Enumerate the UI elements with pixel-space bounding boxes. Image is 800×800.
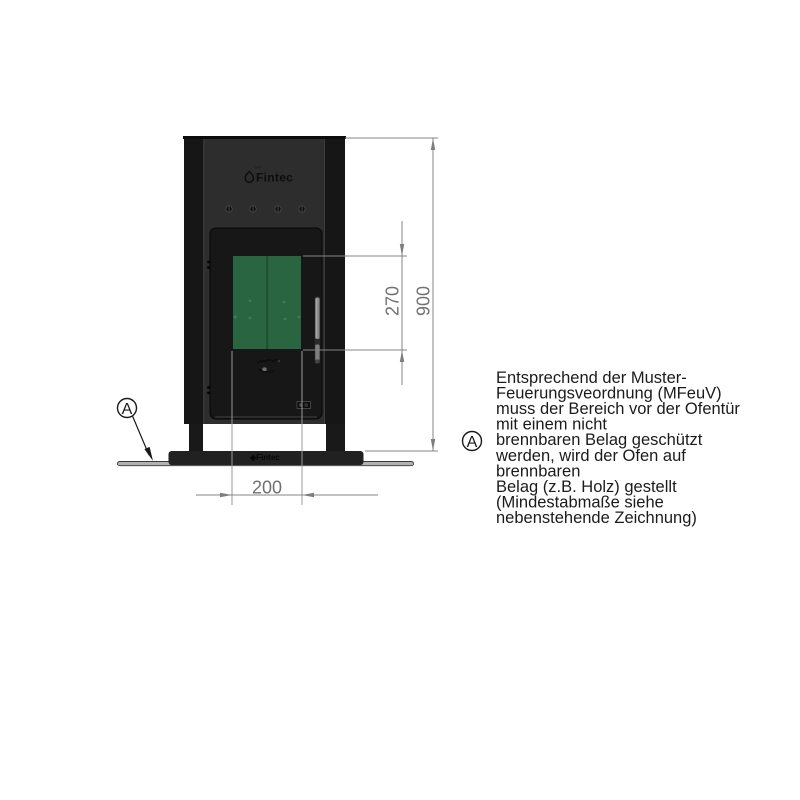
svg-text:A: A — [122, 401, 133, 418]
svg-text:A: A — [467, 434, 478, 451]
svg-text:270: 270 — [383, 286, 403, 316]
svg-text:200: 200 — [252, 478, 282, 498]
svg-text:◈Fintec: ◈Fintec — [249, 453, 280, 462]
svg-text:900: 900 — [414, 286, 434, 316]
svg-text:Fintec: Fintec — [256, 171, 293, 185]
svg-text:nebenstehende Zeichnung): nebenstehende Zeichnung) — [496, 509, 697, 527]
